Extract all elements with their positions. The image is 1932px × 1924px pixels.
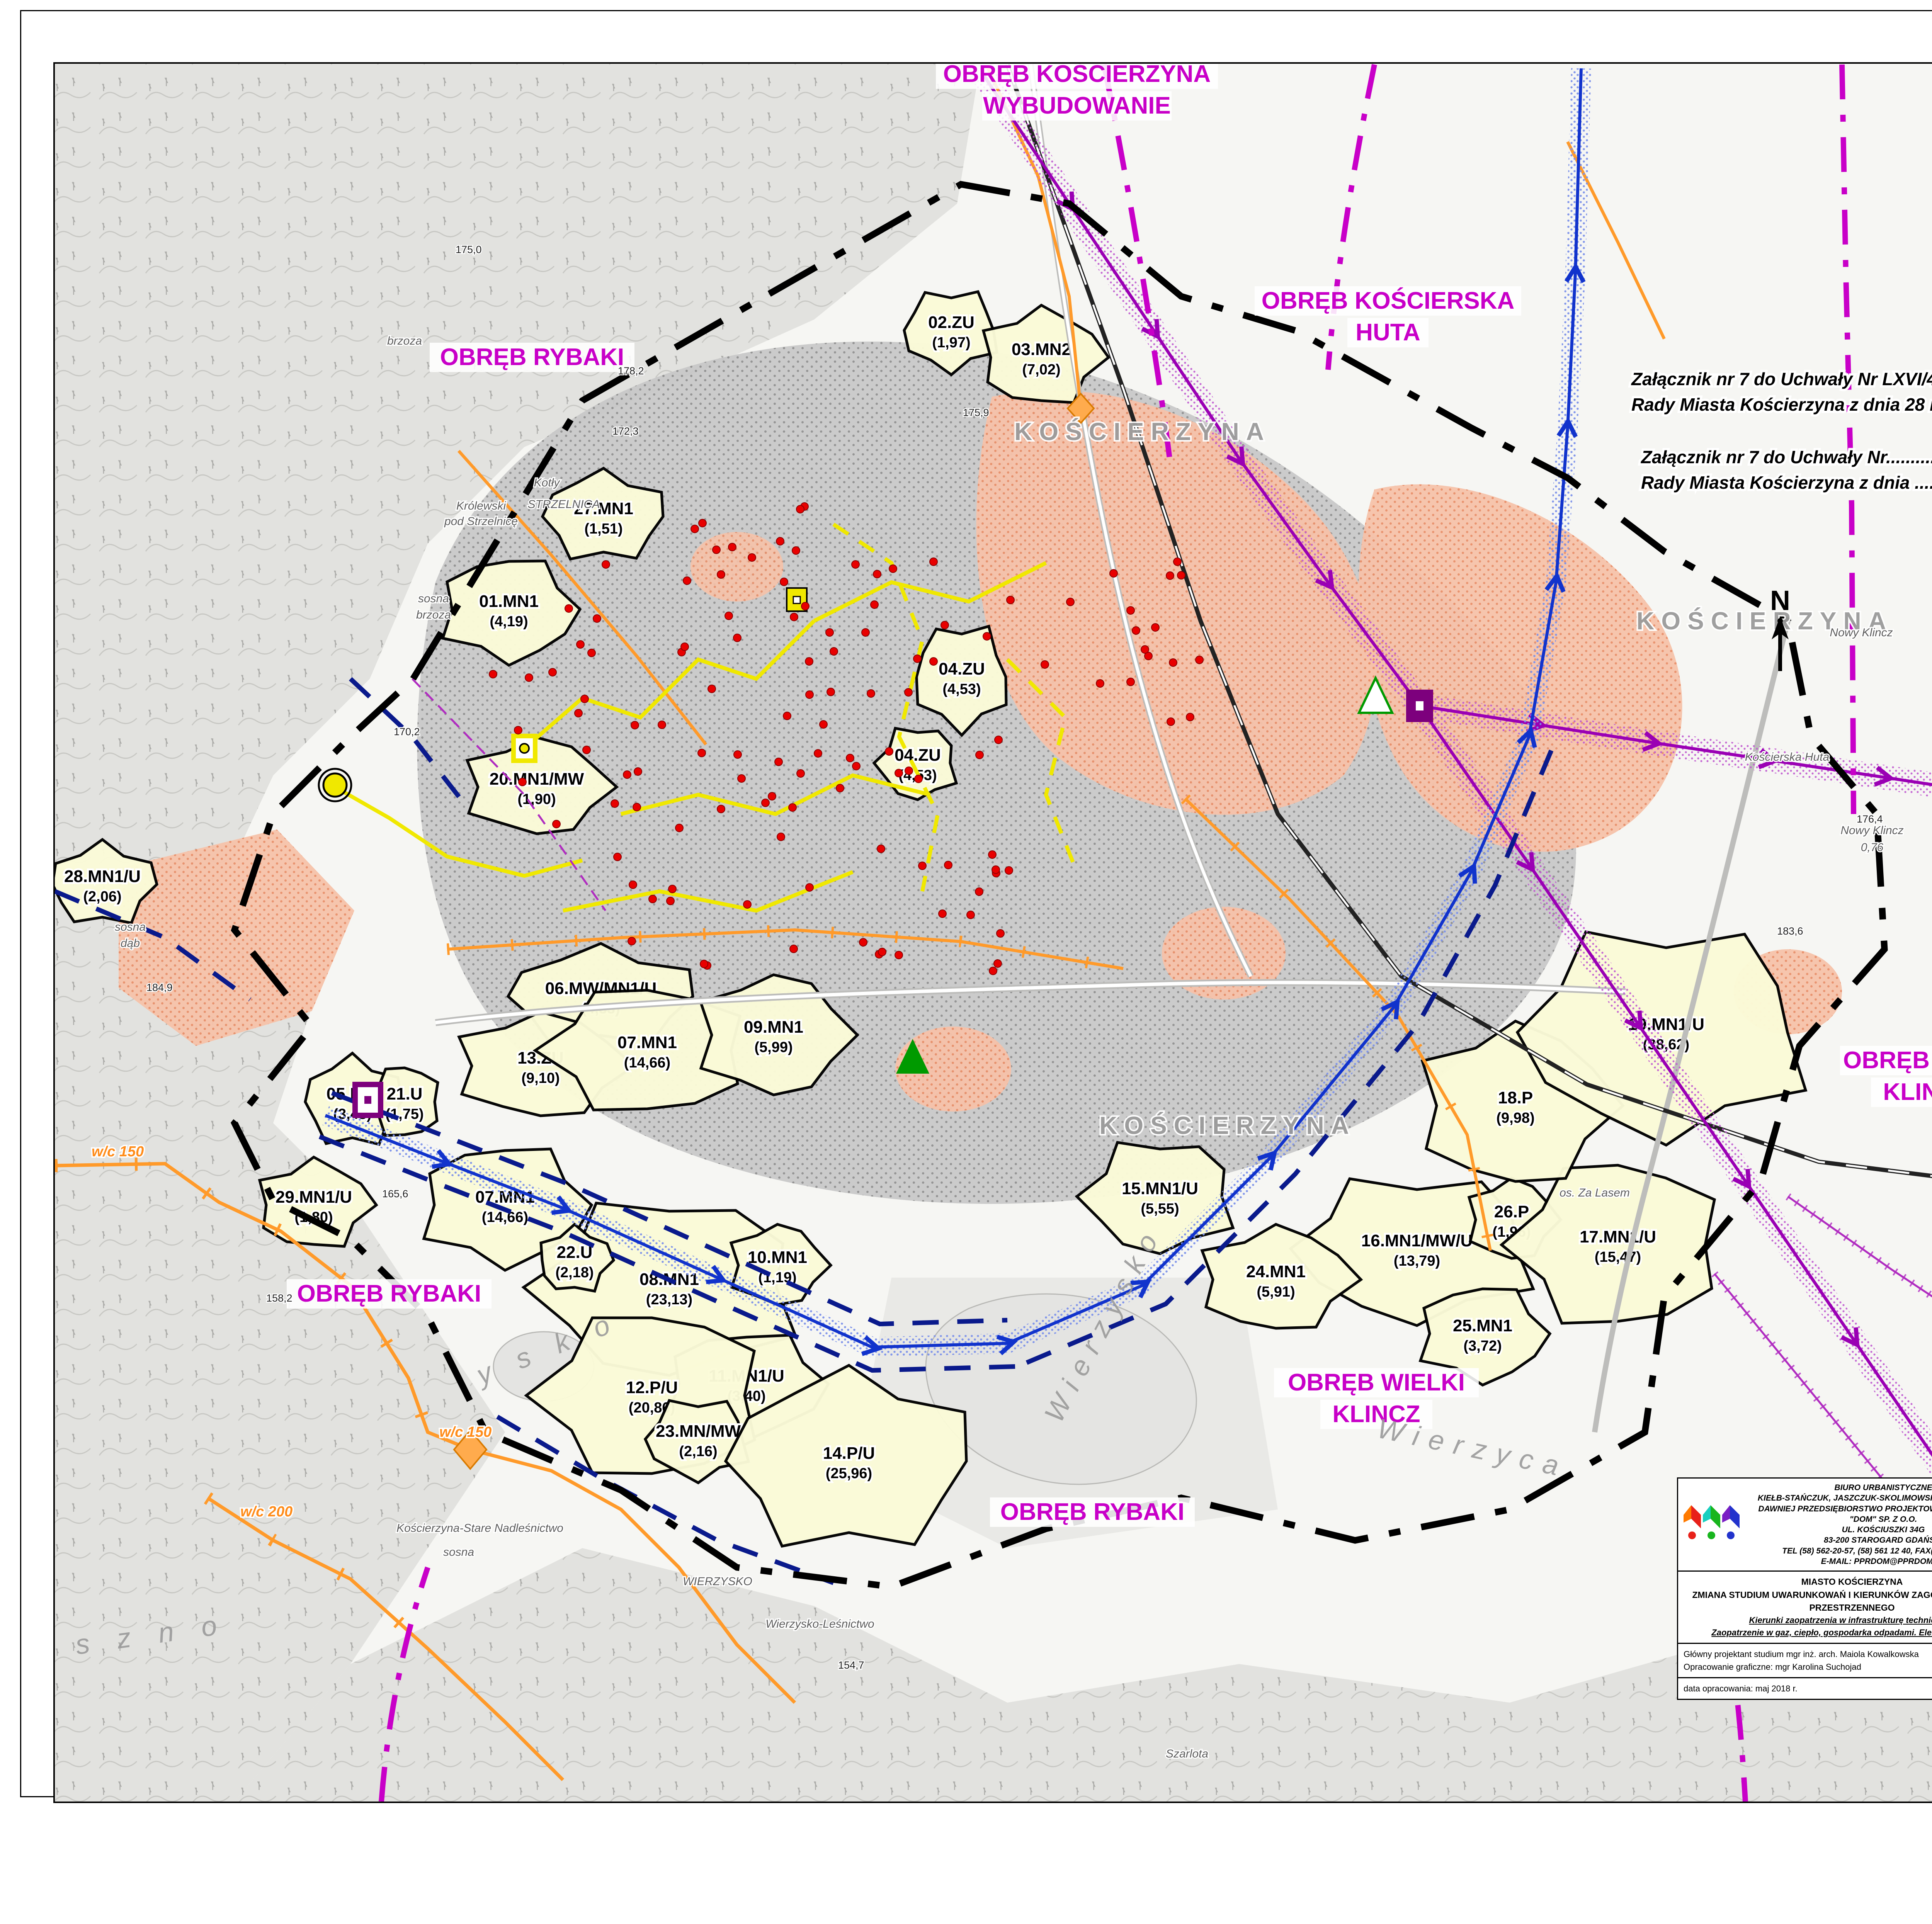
heat-connected-building-dot xyxy=(1177,571,1185,579)
heat-connected-building-dot xyxy=(789,804,796,811)
heat-connected-building-dot xyxy=(1127,607,1134,614)
heat-connected-building-dot xyxy=(889,565,897,573)
elevation-label: 172,3 xyxy=(612,425,639,437)
map-area: 01.MN1(4,19)27.MN1(1,51)02.ZU(1,97)03.MN… xyxy=(53,62,1932,1803)
heat-connected-building-dot xyxy=(1127,678,1134,686)
heat-connected-building-dot xyxy=(1151,624,1159,631)
heat-connected-building-dot xyxy=(593,615,601,622)
obreb-label: OBRĘB NOWY xyxy=(1840,1046,1932,1075)
zone-area: (2,06) xyxy=(83,889,121,905)
obreb-label: KLINCZ xyxy=(1871,1078,1932,1107)
heat-connected-building-dot xyxy=(743,901,751,908)
elevation-label: 165,6 xyxy=(382,1188,408,1200)
stamp-graphics: Opracowanie graficzne: mgr Karolina Such… xyxy=(1684,1661,1932,1673)
gas-pipe-label: w/c 200 xyxy=(240,1504,293,1520)
heat-connected-building-dot xyxy=(995,736,1002,744)
heat-connected-building-dot xyxy=(939,910,946,918)
zone-area: (1,51) xyxy=(584,521,622,537)
stamp-study2: PRZESTRZENNEGO xyxy=(1684,1601,1932,1614)
heat-connected-building-dot xyxy=(614,853,621,861)
heat-connected-building-dot xyxy=(775,758,782,766)
heat-connected-building-dot xyxy=(525,674,533,682)
heat-connected-building-dot xyxy=(780,578,788,586)
heat-connected-building-dot xyxy=(717,571,725,578)
zone-area: (25,96) xyxy=(826,1465,872,1482)
heat-connected-building-dot xyxy=(700,960,708,968)
zone-label: 25.MN1 xyxy=(1453,1316,1512,1335)
place-label: Kościerzyna-Stare Nadleśnictwo xyxy=(396,1522,563,1535)
gas-pipe-label: w/c 150 xyxy=(439,1424,492,1440)
heat-connected-building-dot xyxy=(549,668,556,676)
gpz-koscierzyna-symbol xyxy=(1406,690,1433,722)
gas-pipe-label: w/c 150 xyxy=(92,1144,144,1160)
zone-area: (1,97) xyxy=(932,335,970,351)
heat-connected-building-dot xyxy=(581,695,588,703)
heat-connected-building-dot xyxy=(852,762,860,770)
boiler-tetmajera-symbol xyxy=(514,736,535,761)
heat-connected-building-dot xyxy=(1007,596,1014,604)
elevation-label: 158,2 xyxy=(266,1292,293,1304)
zone-label: 22.U xyxy=(557,1243,593,1262)
heat-connected-building-dot xyxy=(699,519,706,527)
heat-connected-building-dot xyxy=(796,505,804,513)
heat-connected-building-dot xyxy=(992,866,1000,874)
zone-area: (15,47) xyxy=(1595,1249,1641,1265)
stamp-office2: KIEŁB-STAŃCZUK, JASZCZUK-SKOLIMOWSKA SPÓ… xyxy=(1746,1493,1932,1503)
heat-connected-building-dot xyxy=(895,769,903,777)
heat-connected-building-dot xyxy=(725,612,733,620)
heat-connected-building-dot xyxy=(611,800,619,807)
place-label: Wierzysko-Leśnictwo xyxy=(765,1618,874,1630)
heat-connected-building-dot xyxy=(717,805,725,813)
zone-area: (23,13) xyxy=(646,1292,692,1308)
heat-connected-building-dot xyxy=(913,655,921,663)
svg-text:OBRĘB RYBAKI: OBRĘB RYBAKI xyxy=(440,344,624,371)
heat-connected-building-dot xyxy=(777,833,785,841)
heat-connected-building-dot xyxy=(846,754,854,762)
zone-area: (4,53) xyxy=(942,681,981,697)
heat-connected-building-dot xyxy=(553,820,560,828)
zone-area: (14,66) xyxy=(624,1055,670,1071)
heat-connected-building-dot xyxy=(867,690,875,697)
svg-text:OBRĘB KOŚCIERZYNA: OBRĘB KOŚCIERZYNA xyxy=(943,64,1211,87)
svg-text:KLINCZ: KLINCZ xyxy=(1883,1079,1932,1105)
heat-connected-building-dot xyxy=(994,960,1002,967)
heat-connected-building-dot xyxy=(675,824,683,832)
svg-text:WYBUDOWANIE: WYBUDOWANIE xyxy=(983,92,1171,119)
heat-connected-building-dot xyxy=(790,945,798,953)
heat-connected-building-dot xyxy=(1166,572,1174,580)
heat-connected-building-dot xyxy=(814,750,822,757)
stamp-office1: BIURO URBANISTYCZNE xyxy=(1746,1482,1932,1493)
zone-area: (9,98) xyxy=(1496,1110,1534,1126)
stamp-designer: Główny projektant studium mgr inż. arch.… xyxy=(1684,1648,1932,1661)
place-label: WIERZYSKO xyxy=(683,1575,752,1588)
boiler-szpital-symbol xyxy=(319,769,351,801)
zone-label: 28.MN1/U xyxy=(64,867,141,886)
zone-area: (4,19) xyxy=(490,614,528,630)
heat-connected-building-dot xyxy=(629,881,637,889)
svg-text:OBRĘB WIELKI: OBRĘB WIELKI xyxy=(1288,1369,1465,1396)
stamp-office4: UL. KOŚCIUSZKI 34G xyxy=(1746,1525,1932,1535)
obreb-label: OBRĘB RYBAKI xyxy=(990,1497,1195,1527)
elevation-label: 175,0 xyxy=(456,244,482,255)
heat-connected-building-dot xyxy=(1173,558,1181,566)
resolution-annotation: Rady Miasta Kościerzyna z dnia .........… xyxy=(1641,473,1932,493)
resolution-annotation: Załącznik nr 7 do Uchwały Nr............… xyxy=(1640,447,1932,467)
resolution-annotation: Załącznik nr 7 do Uchwały Nr LXVI/496/14 xyxy=(1631,369,1932,389)
heat-connected-building-dot xyxy=(983,632,991,640)
heat-connected-building-dot xyxy=(988,851,996,858)
stamp-date: data opracowania: maj 2018 r. xyxy=(1684,1682,1932,1695)
obreb-label: OBRĘB KOŚCIERSKA xyxy=(1255,286,1521,316)
zone-label: 12.P/U xyxy=(626,1378,678,1397)
stamp-city: MIASTO KOŚCIERZYNA xyxy=(1684,1576,1932,1588)
zone-label: 14.P/U xyxy=(823,1444,875,1463)
heat-connected-building-dot xyxy=(997,930,1004,937)
heat-connected-building-dot xyxy=(565,605,573,612)
heat-connected-building-dot xyxy=(698,749,706,757)
heat-connected-building-dot xyxy=(975,888,983,896)
city-name-label: KOŚCIERZYNA xyxy=(1099,1112,1356,1139)
place-label: sosna xyxy=(443,1546,474,1559)
heat-connected-building-dot xyxy=(575,709,582,717)
heat-connected-building-dot xyxy=(628,937,636,945)
svg-text:HUTA: HUTA xyxy=(1355,319,1420,346)
heat-connected-building-dot xyxy=(877,845,885,853)
heat-connected-building-dot xyxy=(1005,867,1013,874)
zone-label: 29.MN1/U xyxy=(276,1188,352,1207)
heat-connected-building-dot xyxy=(1169,659,1177,666)
elevation-label: 178,2 xyxy=(618,365,644,377)
place-label: Nowy Klincz xyxy=(1830,626,1893,639)
heat-connected-building-dot xyxy=(895,951,903,959)
zone-label: 10.MN1 xyxy=(748,1248,807,1267)
zone-label: 15.MN1/U xyxy=(1122,1179,1198,1198)
heat-connected-building-dot xyxy=(820,721,827,728)
city-name-label: KOŚCIERZYNA xyxy=(1014,418,1271,445)
heat-connected-building-dot xyxy=(878,948,886,956)
zone-label: 03.MN2 xyxy=(1012,340,1071,359)
place-label: 0,76 xyxy=(1861,841,1884,854)
zone-label: 16.MN1/MW/U xyxy=(1361,1231,1473,1250)
stamp-study1: ZMIANA STUDIUM UWARUNKOWAŃ I KIERUNKÓW Z… xyxy=(1684,1589,1932,1601)
heat-connected-building-dot xyxy=(827,688,835,696)
zone-label: 04.ZU xyxy=(939,659,985,678)
heat-connected-building-dot xyxy=(762,799,769,807)
heat-connected-building-dot xyxy=(859,938,867,946)
heat-connected-building-dot xyxy=(873,570,881,578)
zone-label: 17.MN1/U xyxy=(1580,1227,1656,1246)
heat-connected-building-dot xyxy=(1167,718,1175,726)
elevation-label: 176,4 xyxy=(1857,813,1883,825)
heat-connected-building-dot xyxy=(801,602,809,610)
heat-connected-building-dot xyxy=(989,967,997,975)
heat-connected-building-dot xyxy=(805,658,813,665)
stamp-office7: E-MAIL: PPRDOM@PPRDOM.PL xyxy=(1746,1556,1932,1567)
zone-area: (5,91) xyxy=(1257,1284,1295,1300)
zone-label: 04.ZU xyxy=(895,746,941,765)
heat-connected-building-dot xyxy=(862,629,869,636)
heat-connected-building-dot xyxy=(728,543,736,551)
zone-area: (9,10) xyxy=(521,1070,560,1086)
heat-connected-building-dot xyxy=(905,688,912,696)
heat-connected-building-dot xyxy=(930,558,937,566)
heat-connected-building-dot xyxy=(1041,661,1049,668)
heat-connected-building-dot xyxy=(633,803,641,811)
zone-label: 24.MN1 xyxy=(1246,1262,1306,1281)
heat-connected-building-dot xyxy=(583,746,590,754)
heat-connected-building-dot xyxy=(1110,569,1117,577)
heat-connected-building-dot xyxy=(806,691,813,699)
heat-connected-building-dot xyxy=(976,751,983,759)
zone-area: (3,72) xyxy=(1463,1338,1502,1354)
zone-label: 23.MN/MW xyxy=(656,1422,741,1441)
heat-connected-building-dot xyxy=(748,554,756,561)
heat-connected-building-dot xyxy=(681,643,689,651)
place-label: brzoza xyxy=(416,608,451,621)
obreb-label: OBRĘB KOŚCIERZYNA xyxy=(936,64,1218,89)
heat-connected-building-dot xyxy=(852,561,859,568)
heat-connected-building-dot xyxy=(967,911,975,919)
map-canvas: 01.MN1(4,19)27.MN1(1,51)02.ZU(1,97)03.MN… xyxy=(55,64,1932,1802)
heat-connected-building-dot xyxy=(826,629,833,636)
heat-connected-building-dot xyxy=(514,726,522,734)
obreb-label: WYBUDOWANIE xyxy=(982,91,1172,121)
place-label: Kościerska Huta xyxy=(1745,751,1829,763)
heat-connected-building-dot xyxy=(691,525,699,533)
elevation-label: 175,9 xyxy=(963,407,989,418)
zone-area: (13,79) xyxy=(1394,1253,1440,1269)
elevation-label: 170,2 xyxy=(394,726,420,738)
heat-connected-building-dot xyxy=(649,895,656,903)
heat-connected-building-dot xyxy=(830,648,838,655)
heat-connected-building-dot xyxy=(1066,598,1074,606)
obreb-label: OBRĘB RYBAKI xyxy=(430,343,634,372)
stamp-sub2: Zaopatrzenie w gaz, ciepło, gospodarka o… xyxy=(1684,1627,1932,1639)
place-label: dąb xyxy=(121,937,140,950)
heat-connected-building-dot xyxy=(668,885,676,893)
heat-connected-building-dot xyxy=(658,721,666,729)
heat-connected-building-dot xyxy=(602,561,610,568)
heat-connected-building-dot xyxy=(734,751,742,758)
svg-text:OBRĘB NOWY: OBRĘB NOWY xyxy=(1843,1047,1932,1074)
planned-gpz2-symbol xyxy=(355,1084,381,1115)
heat-connected-building-dot xyxy=(519,778,526,786)
heat-connected-building-dot xyxy=(631,721,639,729)
heat-connected-building-dot xyxy=(683,577,691,585)
heat-connected-building-dot xyxy=(1096,680,1104,687)
heat-connected-building-dot xyxy=(1186,713,1194,721)
zone-label: 26.P xyxy=(1494,1202,1529,1221)
place-label: pod Strzelnicę xyxy=(444,515,518,528)
elevation-label: 154,7 xyxy=(838,1659,864,1671)
zone-label: 01.MN1 xyxy=(479,592,539,611)
obreb-label: OBRĘB RYBAKI xyxy=(287,1279,492,1309)
stamp-office5: 83-200 STAROGARD GDAŃSKI xyxy=(1746,1535,1932,1545)
zone-label: 21.U xyxy=(387,1084,423,1103)
heat-connected-building-dot xyxy=(792,547,800,554)
heat-connected-building-dot xyxy=(905,767,913,775)
studio-logo xyxy=(1684,1501,1742,1548)
heat-connected-building-dot xyxy=(836,784,844,792)
zone-label: 02.ZU xyxy=(928,313,975,332)
svg-text:OBRĘB RYBAKI: OBRĘB RYBAKI xyxy=(297,1280,481,1307)
zone-area: (7,02) xyxy=(1022,362,1060,378)
heat-connected-building-dot xyxy=(768,792,776,800)
heat-connected-building-dot xyxy=(667,897,674,905)
zone-area: (2,18) xyxy=(555,1265,594,1281)
zone-area: (5,55) xyxy=(1141,1201,1179,1217)
zone-label: 07.MN1 xyxy=(617,1033,677,1052)
heat-connected-building-dot xyxy=(797,770,804,777)
heat-connected-building-dot xyxy=(713,546,720,554)
heat-connected-building-dot xyxy=(1141,646,1149,653)
zone-label: 09.MN1 xyxy=(744,1018,803,1037)
place-label: Szarlota xyxy=(1166,1747,1208,1760)
heat-connected-building-dot xyxy=(1132,627,1140,634)
plans-patch xyxy=(690,532,783,602)
heat-connected-building-dot xyxy=(806,884,813,891)
heat-connected-building-dot xyxy=(871,601,878,608)
heat-connected-building-dot xyxy=(783,712,791,720)
svg-text:OBRĘB RYBAKI: OBRĘB RYBAKI xyxy=(1000,1499,1185,1525)
elevation-label: 183,6 xyxy=(1777,925,1803,937)
place-label: Nowy Klincz xyxy=(1840,824,1903,837)
svg-text:OBRĘB KOŚCIERSKA: OBRĘB KOŚCIERSKA xyxy=(1262,287,1515,314)
place-label: sosna xyxy=(418,592,449,605)
obreb-label: HUTA xyxy=(1347,318,1429,347)
heat-connected-building-dot xyxy=(776,537,784,545)
zone-label: 18.P xyxy=(1498,1088,1533,1107)
stamp-office6: TEL (58) 562-20-57, (58) 561 12 40, FAX(… xyxy=(1746,1546,1932,1556)
heat-connected-building-dot xyxy=(885,748,893,755)
heat-connected-building-dot xyxy=(915,775,922,783)
place-label: sosna xyxy=(115,921,146,933)
heat-connected-building-dot xyxy=(489,670,497,678)
heat-connected-building-dot xyxy=(733,634,741,642)
place-label: STRZELNICA xyxy=(528,498,600,511)
stamp-sub1: Kierunki zaopatrzenia w infrastrukturę t… xyxy=(1684,1614,1932,1627)
svg-text:N: N xyxy=(1770,585,1790,616)
plan-sheet: 01.MN1(4,19)27.MN1(1,51)02.ZU(1,97)03.MN… xyxy=(20,10,1932,1797)
heat-connected-building-dot xyxy=(941,621,949,629)
heat-connected-building-dot xyxy=(930,658,937,665)
heat-connected-building-dot xyxy=(944,861,952,869)
place-label: Kotły xyxy=(534,476,561,489)
heat-connected-building-dot xyxy=(918,862,926,870)
zone-area: (2,16) xyxy=(679,1443,717,1460)
heat-connected-building-dot xyxy=(738,775,745,782)
stamp-office3: DAWNIEJ PRZEDSIĘBIORSTWO PROJEKTOWO-REAL… xyxy=(1746,1504,1932,1525)
heat-connected-building-dot xyxy=(790,613,798,621)
heat-connected-building-dot xyxy=(577,641,584,648)
obreb-label: OBRĘB WIELKI xyxy=(1274,1368,1479,1397)
heat-connected-building-dot xyxy=(623,771,631,778)
zone-area: (5,99) xyxy=(754,1039,793,1055)
stamp-block: BIURO URBANISTYCZNE KIEŁB-STAŃCZUK, JASZ… xyxy=(1677,1477,1932,1700)
resolution-annotation: Rady Miasta Kościerzyna z dnia 28 maja 2… xyxy=(1631,394,1932,415)
heat-connected-building-dot xyxy=(708,685,716,693)
elevation-label: 184,9 xyxy=(146,982,173,993)
heat-connected-building-dot xyxy=(634,768,642,775)
place-label: brzoza xyxy=(387,335,422,347)
place-label: Królewski xyxy=(456,500,507,512)
place-label: os. Za Lasem xyxy=(1560,1186,1630,1199)
heat-connected-building-dot xyxy=(1196,656,1203,664)
heat-connected-building-dot xyxy=(588,649,595,657)
